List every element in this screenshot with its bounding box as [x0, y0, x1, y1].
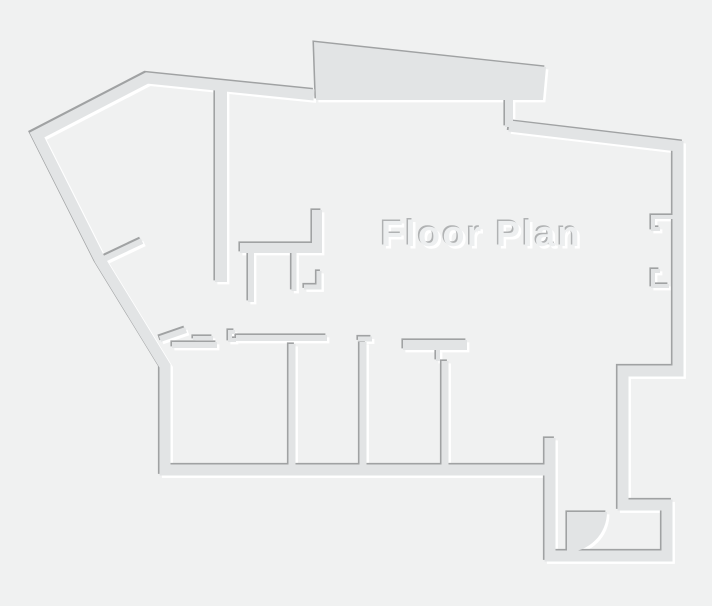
floor-plan-title: Floor Plan: [381, 216, 582, 252]
wall-main-layer: [37, 42, 678, 556]
floor-plan-canvas: Floor Plan: [0, 0, 712, 606]
wall-highlight-layer: [39, 44, 680, 558]
floor-plan-drawing: [0, 0, 712, 606]
